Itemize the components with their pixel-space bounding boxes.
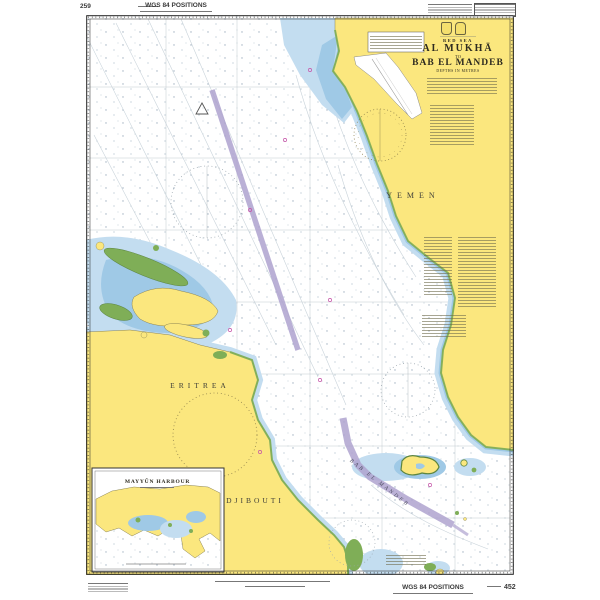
chart-title-line-2: BAB EL MANDEB <box>394 58 522 68</box>
inset-subtitle-lines <box>140 487 174 490</box>
label-yemen: YEMEN <box>368 191 458 200</box>
admiralty-crest-icon <box>455 22 466 35</box>
bottom-center-note-2 <box>245 586 305 589</box>
datum-subnote-top <box>140 11 212 14</box>
nautical-chart-page: 259 WGS 84 POSITIONS WGS 84 POSITIONS 45… <box>0 0 600 600</box>
depths-note: DEPTHS IN METRES <box>408 69 508 73</box>
page-number: 259 <box>80 3 91 10</box>
chart-body <box>86 15 514 575</box>
bottom-center-note <box>215 581 330 584</box>
datum-note-bottom: WGS 84 POSITIONS <box>383 584 483 591</box>
chart-canvas <box>86 15 514 575</box>
inset-title: MAYYŪN HARBOUR <box>110 479 205 485</box>
chart-number: 452 <box>504 584 516 591</box>
royal-crest-icon <box>441 22 452 35</box>
edition-date-note <box>487 586 501 589</box>
datum-subnote-bottom <box>393 593 473 596</box>
chart-title-line-1: AL MUKHĀ <box>398 43 518 54</box>
datum-note-top: WGS 84 POSITIONS <box>130 2 222 9</box>
publication-note <box>88 583 128 592</box>
top-right-note-block <box>428 4 472 14</box>
label-eritrea: ERITREA <box>145 381 255 390</box>
label-djibouti: DJIBOUTI <box>200 496 310 505</box>
